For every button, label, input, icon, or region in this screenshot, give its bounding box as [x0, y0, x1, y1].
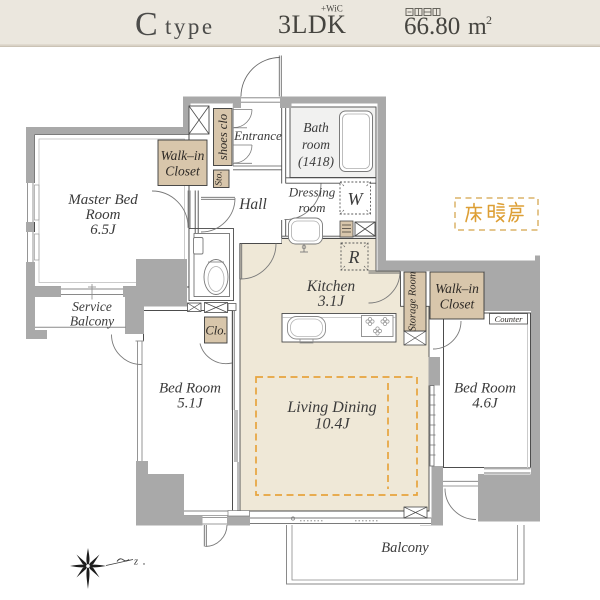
svg-text:3LDK: 3LDK — [278, 10, 346, 39]
svg-text:4.6J: 4.6J — [472, 396, 499, 412]
svg-text:Walk–in: Walk–in — [161, 148, 205, 163]
svg-text:2: 2 — [486, 13, 492, 27]
svg-text:room: room — [299, 200, 326, 215]
svg-text:Balcony: Balcony — [70, 314, 114, 329]
svg-text:Clo.: Clo. — [205, 324, 226, 338]
svg-text:shoes clo: shoes clo — [216, 114, 230, 160]
svg-text:Room: Room — [85, 207, 121, 223]
svg-text:+WiC: +WiC — [321, 4, 343, 14]
svg-text:Closet: Closet — [165, 164, 201, 179]
svg-text:5.1J: 5.1J — [177, 396, 204, 412]
svg-text:room: room — [302, 137, 330, 152]
svg-text:Counter: Counter — [495, 314, 524, 324]
svg-text:C: C — [135, 6, 158, 43]
svg-text:Service: Service — [72, 299, 112, 314]
svg-text:Balcony: Balcony — [381, 540, 429, 556]
svg-text:(1418): (1418) — [298, 154, 334, 169]
svg-text:Dressing: Dressing — [288, 185, 336, 200]
svg-text:66.80: 66.80 — [404, 13, 460, 40]
svg-text:Master Bed: Master Bed — [67, 192, 138, 208]
svg-text:Bed Room: Bed Room — [159, 381, 221, 397]
svg-text:10.4J: 10.4J — [314, 416, 350, 433]
svg-text:R: R — [348, 247, 360, 267]
svg-text:W: W — [348, 189, 365, 209]
svg-text:Walk–in: Walk–in — [435, 281, 479, 296]
svg-text:Bed Room: Bed Room — [454, 381, 516, 397]
svg-text:Closet: Closet — [440, 297, 476, 312]
svg-text:z: z — [133, 557, 138, 568]
svg-text:type: type — [165, 14, 215, 39]
svg-text:Storage Room: Storage Room — [408, 271, 419, 331]
svg-text:Entrance: Entrance — [233, 128, 282, 143]
svg-text:m: m — [468, 14, 487, 40]
svg-text:3.1J: 3.1J — [317, 293, 345, 310]
svg-text:Bath: Bath — [303, 120, 329, 135]
svg-text:Living Dining: Living Dining — [286, 399, 376, 416]
svg-text:Hall: Hall — [238, 196, 267, 213]
svg-text:6.5J: 6.5J — [90, 222, 117, 238]
svg-text:Sto.: Sto. — [215, 171, 225, 186]
